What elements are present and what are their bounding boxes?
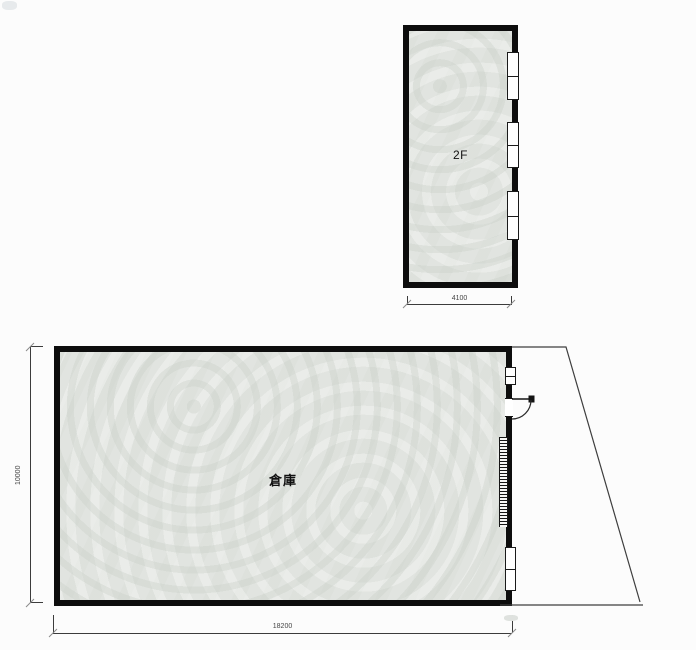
window-2f-1	[507, 52, 519, 100]
dimension-end-tick	[30, 602, 43, 603]
door-leaf-end	[529, 396, 535, 403]
window-mullion	[506, 569, 515, 570]
scan-smudge	[504, 615, 518, 621]
window-mullion	[506, 376, 515, 377]
dimension-line-2f-width	[407, 304, 512, 305]
site-boundary-diagonal	[512, 347, 640, 602]
window-mullion	[508, 216, 518, 217]
dimension-text-warehouse-height: 10000	[14, 448, 24, 502]
dimension-line-warehouse-width	[53, 633, 512, 634]
window-warehouse-upper	[505, 367, 516, 385]
window-2f-3	[507, 191, 519, 240]
window-warehouse-lower	[505, 547, 516, 591]
window-mullion	[508, 145, 518, 146]
door-swing-symbol	[512, 396, 535, 420]
window-mullion	[508, 76, 518, 77]
room-label-warehouse: 倉庫	[54, 470, 512, 489]
door-opening	[505, 398, 513, 417]
scan-smudge	[2, 1, 17, 10]
dimension-line-warehouse-height	[30, 347, 31, 603]
site-boundary	[500, 347, 643, 605]
dimension-text-2f-width: 4100	[407, 295, 512, 303]
floor-plan-page: { "floor2": { "label": "2F", "width_dim"…	[0, 0, 696, 650]
room-label-2f: 2F	[403, 148, 518, 162]
dimension-text-warehouse-width: 18200	[53, 623, 512, 631]
door-arc	[512, 400, 531, 419]
dimension-end-tick	[30, 346, 43, 347]
